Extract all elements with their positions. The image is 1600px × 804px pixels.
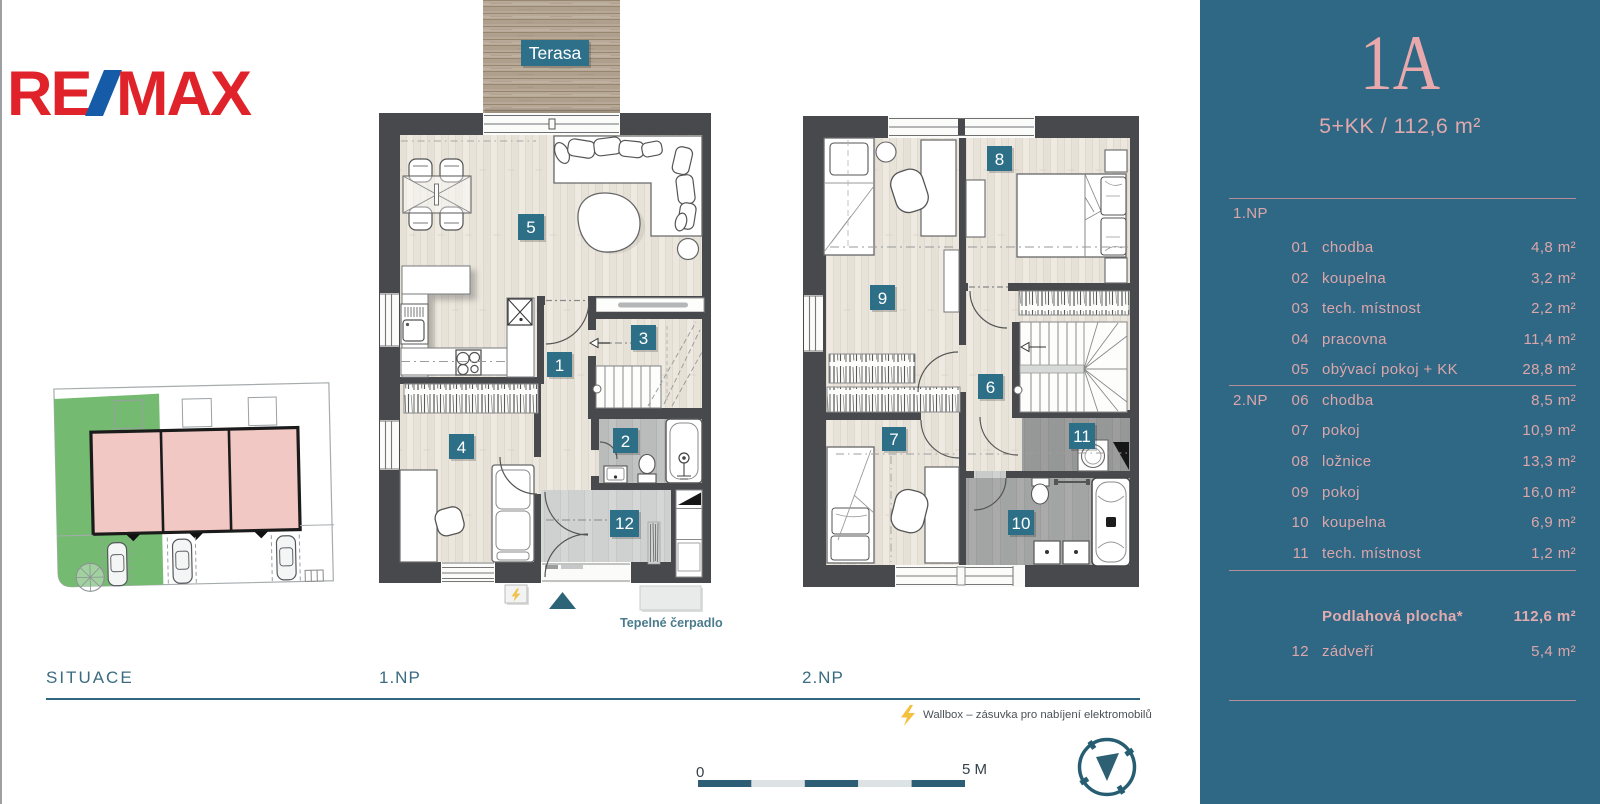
svg-text:5: 5: [526, 218, 535, 237]
svg-text:Tepelné čerpadlo: Tepelné čerpadlo: [620, 616, 723, 630]
svg-text:7: 7: [889, 430, 898, 449]
svg-text:4: 4: [457, 438, 466, 457]
svg-text:12: 12: [615, 514, 634, 533]
svg-text:9: 9: [878, 289, 887, 308]
svg-text:SITUACE: SITUACE: [46, 668, 134, 687]
svg-text:1.NP: 1.NP: [379, 668, 421, 687]
svg-text:11: 11: [1073, 427, 1091, 446]
svg-text:6: 6: [986, 378, 995, 397]
svg-text:2: 2: [621, 432, 630, 451]
svg-text:8: 8: [995, 150, 1004, 169]
svg-text:Terasa: Terasa: [529, 43, 582, 63]
svg-text:3: 3: [639, 329, 648, 348]
svg-text:10: 10: [1012, 514, 1031, 533]
svg-text:5 M: 5 M: [962, 761, 987, 778]
svg-text:2.NP: 2.NP: [802, 668, 844, 687]
svg-text:Wallbox – zásuvka pro nabíjení: Wallbox – zásuvka pro nabíjení elektromo…: [923, 709, 1152, 721]
svg-text:0: 0: [696, 764, 704, 781]
svg-text:1: 1: [555, 356, 564, 375]
